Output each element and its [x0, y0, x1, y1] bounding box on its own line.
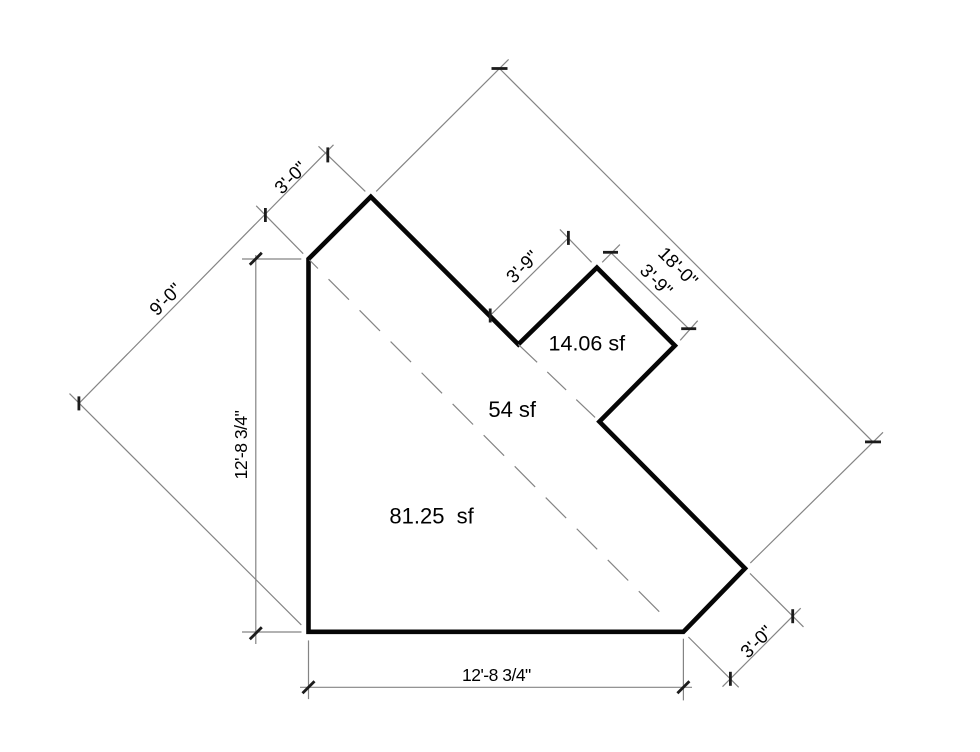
svg-text:14.06 sf: 14.06 sf — [549, 332, 626, 356]
svg-text:81.25 sf: 81.25 sf — [389, 504, 474, 529]
svg-text:12'-8 3/4": 12'-8 3/4" — [231, 410, 251, 479]
svg-text:12'-8 3/4": 12'-8 3/4" — [462, 665, 531, 685]
svg-text:54 sf: 54 sf — [488, 397, 537, 422]
